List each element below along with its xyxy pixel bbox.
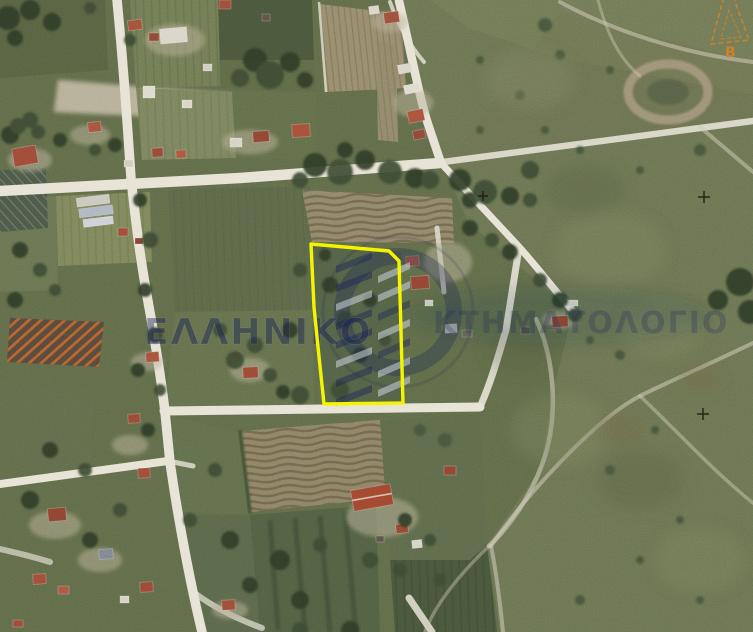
map-canvas[interactable]: ΕΛΛΗΝΙΚΟ ΚΤΗΜΑΤΟΛΟΓΙΟ B [0,0,753,632]
photo-grain [0,0,753,632]
